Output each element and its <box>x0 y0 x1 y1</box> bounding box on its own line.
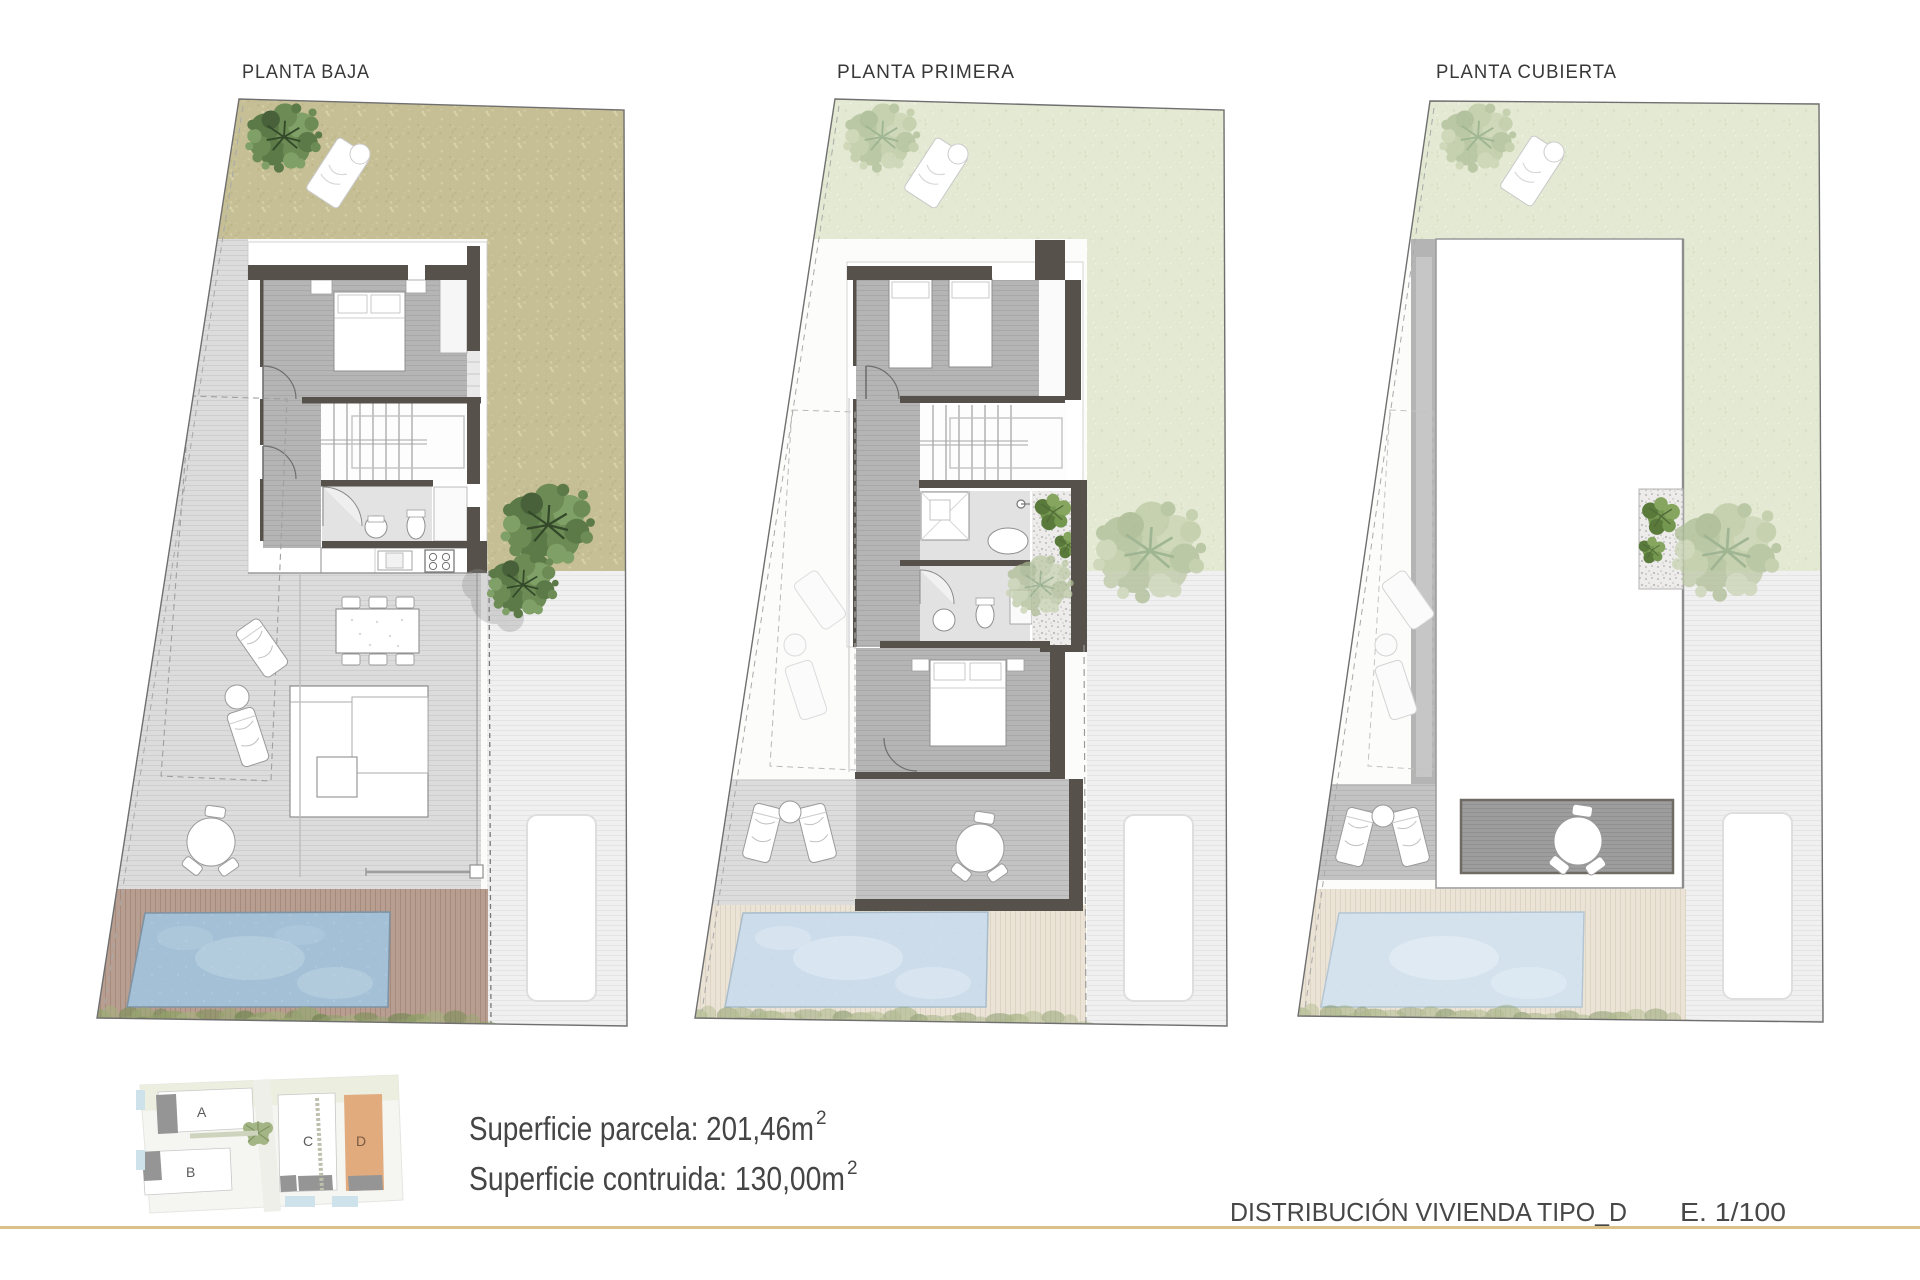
svg-text:2: 2 <box>816 1108 827 1129</box>
svg-text:2: 2 <box>847 1158 858 1179</box>
svg-text:Superficie contruida: 130,00m: Superficie contruida: 130,00m <box>469 1160 845 1197</box>
svg-text:PLANTA CUBIERTA: PLANTA CUBIERTA <box>1436 61 1617 83</box>
svg-text:PLANTA BAJA: PLANTA BAJA <box>242 61 370 83</box>
svg-text:B: B <box>186 1164 195 1180</box>
svg-text:DISTRIBUCIÓN VIVIENDA TIPO_D: DISTRIBUCIÓN VIVIENDA TIPO_D <box>1230 1197 1627 1227</box>
svg-text:E. 1/100: E. 1/100 <box>1680 1197 1786 1227</box>
svg-text:C: C <box>303 1133 313 1149</box>
svg-text:Superficie parcela: 201,46m: Superficie parcela: 201,46m <box>469 1110 814 1147</box>
svg-text:D: D <box>356 1133 366 1149</box>
svg-text:A: A <box>197 1104 207 1120</box>
svg-text:PLANTA PRIMERA: PLANTA PRIMERA <box>837 61 1015 83</box>
